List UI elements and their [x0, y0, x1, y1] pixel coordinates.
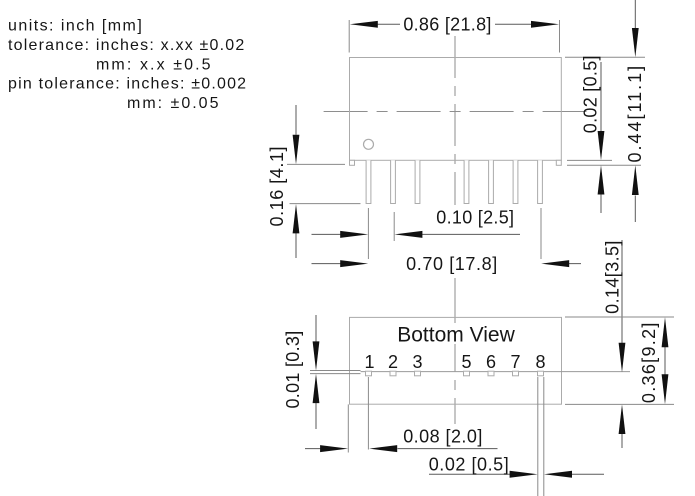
svg-text:2: 2	[388, 352, 398, 372]
svg-text:3: 3	[412, 352, 422, 372]
svg-text:6: 6	[486, 352, 496, 372]
svg-text:7: 7	[510, 352, 520, 372]
svg-text:tolerance: inches: x.xx ±0.02: tolerance: inches: x.xx ±0.02	[8, 37, 245, 54]
svg-text:0.16 [4.1]: 0.16 [4.1]	[267, 146, 287, 227]
svg-text:0.02 [0.5]: 0.02 [0.5]	[429, 455, 510, 475]
svg-text:0.86 [21.8]: 0.86 [21.8]	[403, 15, 491, 35]
svg-text:0.70 [17.8]: 0.70 [17.8]	[406, 254, 498, 274]
svg-text:units: inch [mm]: units: inch [mm]	[8, 18, 143, 35]
svg-text:0.44[11.1]: 0.44[11.1]	[625, 64, 645, 163]
svg-text:0.10 [2.5]: 0.10 [2.5]	[436, 208, 514, 228]
svg-text:5: 5	[461, 352, 471, 372]
svg-text:0.14[3.5]: 0.14[3.5]	[603, 240, 623, 314]
svg-text:pin tolerance: inches: ±0.002: pin tolerance: inches: ±0.002	[8, 76, 247, 93]
svg-text:mm: x.x ±0.5: mm: x.x ±0.5	[96, 56, 213, 73]
svg-text:0.08 [2.0]: 0.08 [2.0]	[403, 426, 483, 446]
svg-text:0.36[9.2]: 0.36[9.2]	[639, 321, 659, 403]
svg-text:mm: ±0.05: mm: ±0.05	[127, 95, 220, 112]
svg-text:Bottom View: Bottom View	[397, 323, 515, 346]
svg-text:1: 1	[364, 352, 374, 372]
svg-text:0.02 [0.5]: 0.02 [0.5]	[581, 55, 601, 133]
svg-text:8: 8	[535, 352, 545, 372]
svg-text:0.01 [0.3]: 0.01 [0.3]	[283, 330, 303, 408]
